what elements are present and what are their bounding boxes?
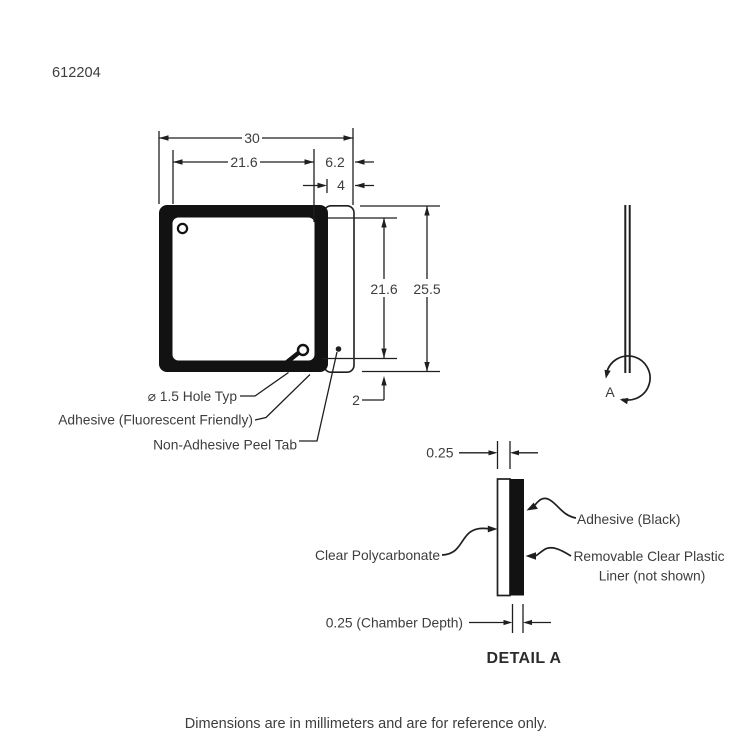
dimension-polycarbonate-thickness: 0.25 <box>426 441 538 469</box>
gasket-cavity <box>173 218 315 361</box>
dim-polycarbonate-thickness: 0.25 <box>426 445 453 461</box>
polycarbonate-leader <box>442 528 488 555</box>
liner-callout-line2: Liner (not shown) <box>599 569 706 584</box>
detail-view: 0.25 0.25 (Chamber Depth) Adhesive (Blac… <box>315 441 725 667</box>
dim-inner-width: 21.6 <box>230 154 257 170</box>
front-view: 30 21.6 6.2 4 21.6 <box>58 128 441 453</box>
dim-tab-overall: 6.2 <box>325 154 345 170</box>
polycarbonate-leader-arrow <box>488 526 498 533</box>
liner-leader-arrow <box>526 552 537 560</box>
side-view: A <box>605 205 651 404</box>
detail-circle-arrow-top <box>605 370 611 379</box>
dim-outer-width: 30 <box>244 130 260 146</box>
adhesive-black-callout: Adhesive (Black) <box>577 512 681 527</box>
dimension-inner-width: 21.6 <box>173 154 314 170</box>
detail-title: DETAIL A <box>487 650 562 667</box>
adhesive-leader <box>255 375 310 421</box>
alignment-hole-top-left <box>178 224 187 233</box>
peel-tab-callout: Non-Adhesive Peel Tab <box>153 438 297 453</box>
adhesive-callout: Adhesive (Fluorescent Friendly) <box>58 413 253 428</box>
hole-callout: ⌀ 1.5 Hole Typ <box>148 389 238 404</box>
technical-drawing-page: 30 21.6 6.2 4 21.6 <box>0 0 750 750</box>
detail-circle-arrow-bottom <box>620 398 629 404</box>
part-number: 612204 <box>52 65 101 81</box>
hole-leader <box>240 373 289 397</box>
dimension-tab-overall: 6.2 <box>325 154 374 170</box>
dim-outer-height: 25.5 <box>413 281 440 297</box>
dim-inner-height: 21.6 <box>370 281 397 297</box>
dimension-border-thickness: 2 <box>352 376 387 408</box>
dim-tab-width: 4 <box>337 177 345 193</box>
dimension-chamber-depth: 0.25 (Chamber Depth) <box>326 604 551 633</box>
dim-border-thickness: 2 <box>352 392 360 408</box>
dimension-outer-height: 25.5 <box>413 206 440 372</box>
adhesive-black-leader <box>535 498 576 518</box>
clear-polycarbonate-callout: Clear Polycarbonate <box>315 548 440 563</box>
drawing-canvas: 30 21.6 6.2 4 21.6 <box>0 0 750 750</box>
dimension-inner-height: 21.6 <box>370 218 397 358</box>
footer-note: Dimensions are in millimeters and are fo… <box>185 716 547 732</box>
liner-leader <box>536 548 571 556</box>
cross-section-polycarbonate <box>498 479 511 596</box>
dim-chamber-depth: 0.25 (Chamber Depth) <box>326 616 463 631</box>
dimension-outer-width: 30 <box>159 130 353 146</box>
detail-marker-label: A <box>605 384 615 400</box>
liner-callout-line1: Removable Clear Plastic <box>573 549 724 564</box>
alignment-hole-bottom-right <box>298 345 308 355</box>
leader-dot <box>336 346 342 352</box>
cross-section-adhesive <box>510 479 524 596</box>
